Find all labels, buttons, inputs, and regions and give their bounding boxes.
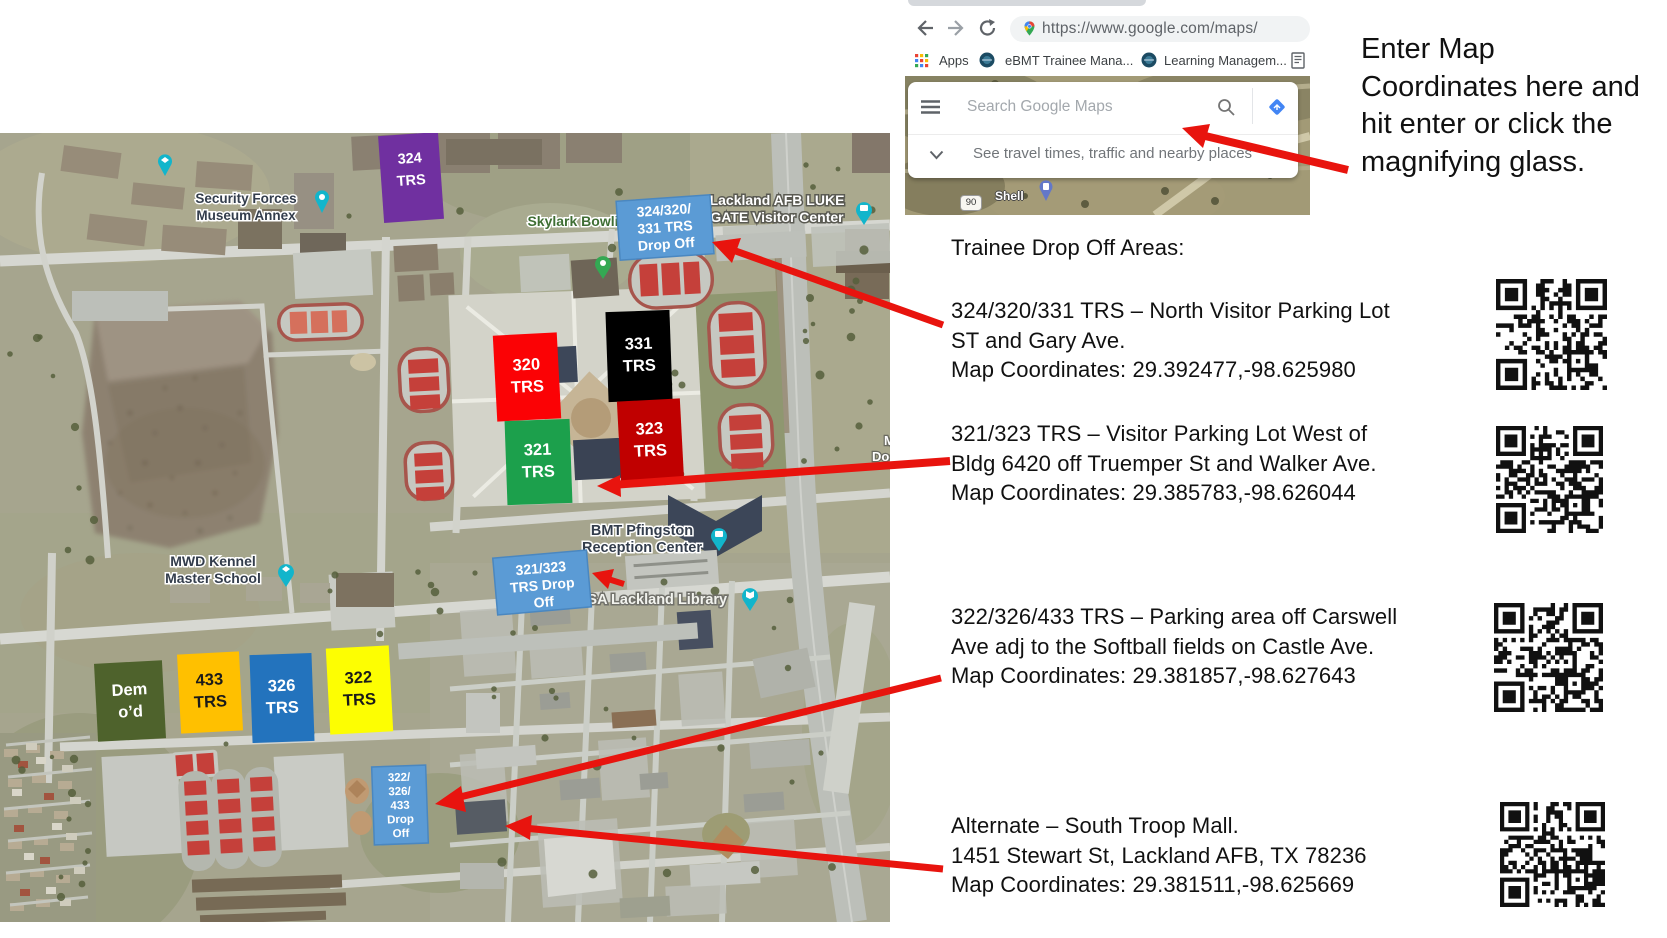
- svg-text:Drop: Drop: [387, 814, 414, 827]
- svg-text:Security Forces: Security Forces: [195, 191, 296, 206]
- svg-text:TRS: TRS: [511, 377, 545, 397]
- svg-text:321: 321: [524, 441, 552, 460]
- svg-text:JBSA Lackland Library: JBSA Lackland Library: [569, 592, 727, 608]
- svg-text:M: M: [884, 433, 890, 448]
- svg-text:TRS: TRS: [634, 441, 668, 461]
- svg-text:TRS: TRS: [522, 462, 556, 481]
- svg-text:MWD Kennel: MWD Kennel: [170, 553, 256, 569]
- svg-text:Dem: Dem: [111, 680, 148, 700]
- svg-text:o’d: o’d: [118, 702, 144, 721]
- svg-text:TRS: TRS: [266, 698, 300, 717]
- svg-text:Skylark Bowli: Skylark Bowli: [527, 213, 618, 229]
- svg-text:322: 322: [344, 668, 372, 687]
- svg-text:433: 433: [195, 670, 223, 689]
- svg-text:326/: 326/: [388, 786, 412, 799]
- svg-text:Master School: Master School: [165, 570, 261, 586]
- svg-text:323: 323: [635, 419, 663, 438]
- svg-text:320: 320: [512, 355, 540, 374]
- svg-text:TRS: TRS: [623, 356, 657, 375]
- svg-text:TRS: TRS: [343, 690, 377, 710]
- svg-text:326: 326: [268, 677, 296, 696]
- svg-text:Lackland AFB LUKE: Lackland AFB LUKE: [710, 192, 845, 208]
- svg-text:TRS: TRS: [194, 692, 228, 712]
- svg-text:322/: 322/: [388, 772, 412, 785]
- svg-text:GATE Visitor Center: GATE Visitor Center: [710, 209, 844, 225]
- svg-text:Museum Annex: Museum Annex: [196, 208, 296, 223]
- svg-text:Doc: Doc: [872, 449, 890, 464]
- svg-text:TRS: TRS: [396, 172, 426, 190]
- svg-text:Reception Center: Reception Center: [582, 540, 702, 556]
- svg-text:Off: Off: [533, 593, 555, 611]
- svg-text:331: 331: [625, 335, 653, 354]
- svg-text:BMT Pfingston: BMT Pfingston: [591, 523, 693, 539]
- svg-text:433: 433: [390, 800, 410, 813]
- svg-text:Off: Off: [393, 828, 410, 841]
- svg-text:324: 324: [397, 150, 422, 168]
